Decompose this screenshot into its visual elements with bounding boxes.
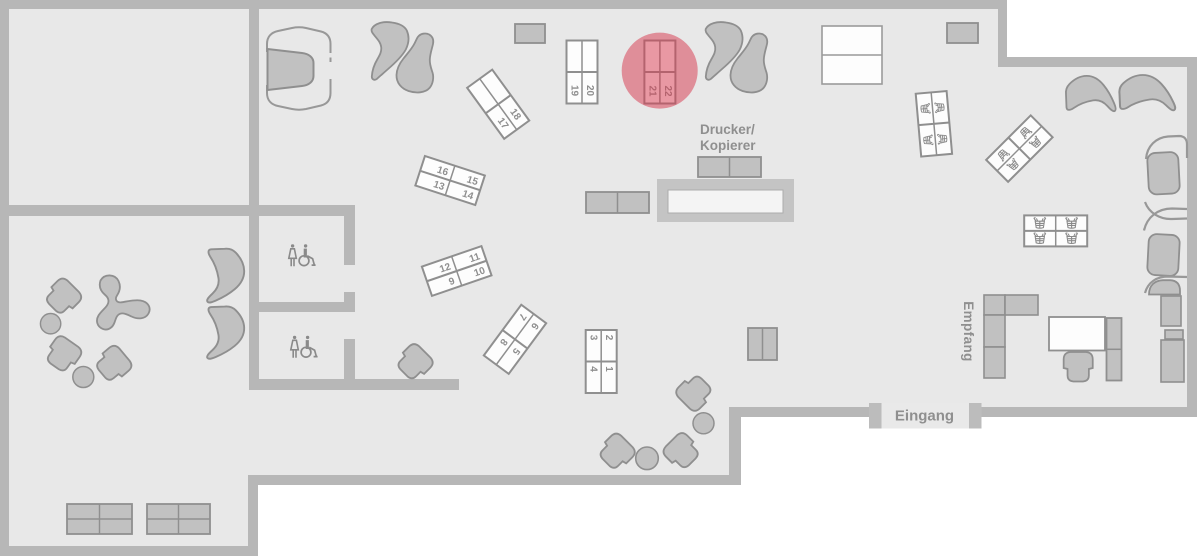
svg-text:19: 19 <box>569 85 580 97</box>
svg-text:Eingang: Eingang <box>895 408 954 425</box>
svg-text:20: 20 <box>584 85 595 97</box>
svg-text:Drucker/: Drucker/ <box>700 122 755 137</box>
svg-text:Kopierer: Kopierer <box>700 138 756 153</box>
svg-text:4: 4 <box>588 366 599 372</box>
svg-text:Empfang: Empfang <box>961 301 976 362</box>
svg-text:2: 2 <box>603 335 614 341</box>
svg-text:1: 1 <box>603 366 614 372</box>
svg-text:3: 3 <box>588 335 599 341</box>
